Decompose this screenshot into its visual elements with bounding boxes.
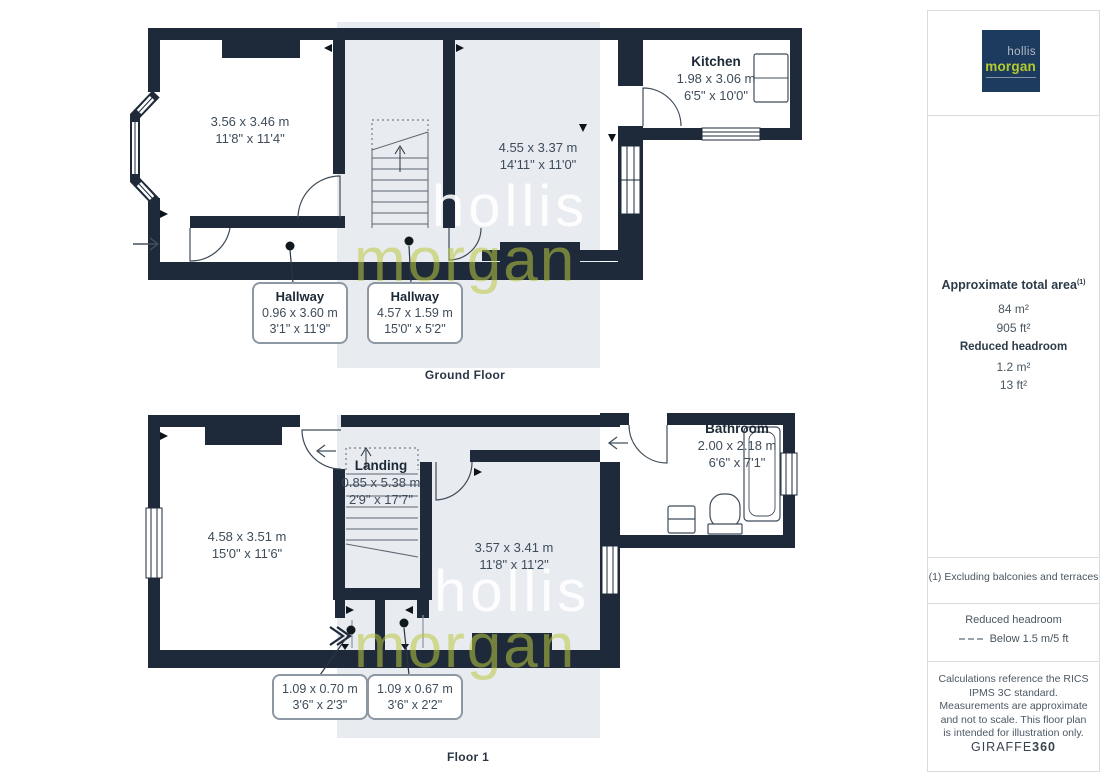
room-dims-m: 4.58 x 3.51 m (208, 528, 287, 545)
total-area-title-text: Approximate total area (941, 278, 1076, 292)
callout-dims-m: 4.57 x 1.59 m (377, 305, 453, 321)
room-label-reception: 4.55 x 3.37 m 14'11" x 11'0" (499, 139, 578, 173)
room-dims-m: 3.56 x 3.46 m (211, 113, 290, 130)
room-dims-ft: 6'6" x 7'1" (698, 454, 777, 471)
total-area-ft2: 905 ft² (928, 321, 1099, 335)
room-dims-m: 3.57 x 3.41 m (475, 539, 554, 556)
callout-hallway-2: Hallway 4.57 x 1.59 m 15'0" x 5'2" (367, 282, 463, 344)
room-label-bedroom-1: 4.58 x 3.51 m 15'0" x 11'6" (208, 528, 287, 562)
total-area-footnote-ref: (1) (1077, 279, 1086, 286)
room-dims-m: 0.85 x 5.38 m (342, 474, 421, 491)
callout-title: Hallway (377, 289, 453, 305)
room-dims-ft: 15'0" x 11'6" (208, 545, 287, 562)
room-dims-m: 2.00 x 2.18 m (698, 437, 777, 454)
sidebar-divider (928, 603, 1099, 604)
hollis-morgan-logo: hollis morgan (982, 30, 1040, 92)
footnote-text: (1) Excluding balconies and terraces (928, 571, 1099, 583)
room-dims-ft: 11'8" x 11'4" (211, 130, 290, 147)
callout-dims-m: 1.09 x 0.67 m (377, 681, 453, 697)
disclaimer-text: Calculations reference the RICS IPMS 3C … (938, 673, 1089, 741)
room-dims-m: 4.55 x 3.37 m (499, 139, 578, 156)
reduced-headroom-title: Reduced headroom (928, 341, 1099, 353)
room-title: Kitchen (677, 53, 756, 70)
bay-window (135, 94, 156, 202)
legend-desc: Below 1.5 m/5 ft (990, 633, 1069, 645)
floor-1-label: Floor 1 (447, 750, 489, 764)
reduced-headroom-m2: 1.2 m² (928, 360, 1099, 374)
room-dims-ft: 6'5" x 10'0" (677, 87, 756, 104)
room-dims-ft: 11'8" x 11'2" (475, 556, 554, 573)
callout-dims-m: 0.96 x 3.60 m (262, 305, 338, 321)
ground-floor-label: Ground Floor (425, 368, 505, 382)
floorplan-page: hollis morgan hollis morgan 3.56 x 3.46 … (0, 0, 1100, 777)
logo-text-hollis: hollis (1007, 46, 1036, 58)
callout-dims-m: 1.09 x 0.70 m (282, 681, 358, 697)
reduced-headroom-ft2: 13 ft² (928, 378, 1099, 392)
bathroom-sink (668, 506, 695, 533)
info-sidebar: hollis morgan Approximate total area(1) … (927, 10, 1100, 772)
brand-name: GIRAFFE (971, 740, 1032, 754)
legend-row: Below 1.5 m/5 ft (928, 633, 1099, 645)
callout-cupboard-2: 1.09 x 0.67 m 3'6" x 2'2" (367, 674, 463, 720)
sidebar-divider (928, 661, 1099, 662)
callout-cupboard-1: 1.09 x 0.70 m 3'6" x 2'3" (272, 674, 368, 720)
total-area-m2: 84 m² (928, 302, 1099, 316)
callout-dims-ft: 3'1" x 11'9" (262, 321, 338, 337)
callout-dims-ft: 3'6" x 2'2" (377, 697, 453, 713)
logo-rule (986, 77, 1036, 78)
room-title: Landing (342, 457, 421, 474)
logo-text-morgan: morgan (985, 59, 1036, 74)
sidebar-divider (928, 557, 1099, 558)
total-area-title: Approximate total area(1) (928, 278, 1099, 292)
callout-title: Hallway (262, 289, 338, 305)
room-dims-m: 1.98 x 3.06 m (677, 70, 756, 87)
callout-dims-ft: 3'6" x 2'3" (282, 697, 358, 713)
brand-suffix: 360 (1032, 740, 1056, 754)
room-label-bedroom-2: 3.57 x 3.41 m 11'8" x 11'2" (475, 539, 554, 573)
room-label-front-room: 3.56 x 3.46 m 11'8" x 11'4" (211, 113, 290, 147)
kitchen-sink (754, 54, 788, 102)
callout-dims-ft: 15'0" x 5'2" (377, 321, 453, 337)
callout-hallway-1: Hallway 0.96 x 3.60 m 3'1" x 11'9" (252, 282, 348, 344)
room-label-kitchen: Kitchen 1.98 x 3.06 m 6'5" x 10'0" (677, 53, 756, 104)
room-dims-ft: 2'9" x 17'7" (342, 491, 421, 508)
room-title: Bathroom (698, 420, 777, 437)
legend-title: Reduced headroom (928, 614, 1099, 626)
kitchen-door-gap (618, 86, 643, 126)
toilet (708, 494, 742, 534)
room-label-landing: Landing 0.85 x 5.38 m 2'9" x 17'7" (342, 457, 421, 508)
room-dims-ft: 14'11" x 11'0" (499, 156, 578, 173)
sidebar-divider (928, 115, 1099, 116)
bathroom-door-gap (629, 413, 667, 425)
giraffe360-brand: GIRAFFE360 (928, 740, 1099, 754)
room-label-bathroom: Bathroom 2.00 x 2.18 m 6'6" x 7'1" (698, 420, 777, 471)
dashed-line-icon (959, 638, 983, 640)
